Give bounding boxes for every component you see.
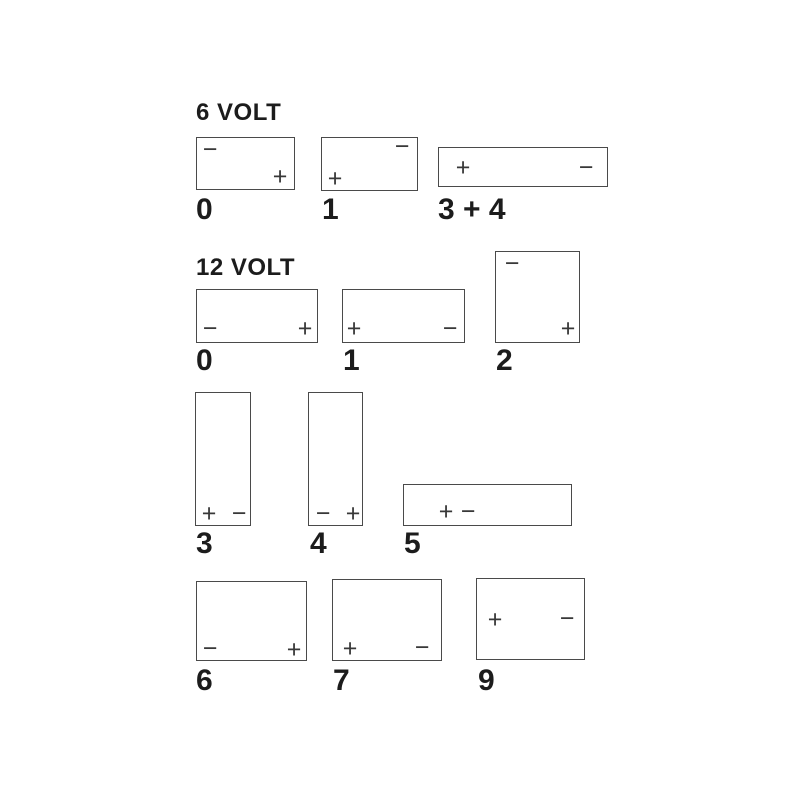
minus-terminal-icon: −: [505, 252, 520, 277]
battery-box-6-volt-0: −+: [196, 137, 295, 190]
battery-label-12-volt-3: 3: [196, 529, 213, 559]
battery-box-12-volt-4: −+: [308, 392, 363, 526]
minus-terminal-icon: −: [316, 502, 331, 527]
battery-label-12-volt-7: 7: [333, 666, 350, 696]
minus-terminal-icon: −: [395, 135, 410, 160]
plus-terminal-icon: +: [328, 167, 343, 192]
battery-label-12-volt-6: 6: [196, 666, 213, 696]
minus-terminal-icon: −: [443, 317, 458, 342]
plus-terminal-icon: +: [347, 317, 362, 342]
plus-terminal-icon: +: [287, 638, 302, 663]
battery-label-6-volt-1: 1: [322, 195, 339, 225]
battery-label-12-volt-9: 9: [478, 666, 495, 696]
minus-terminal-icon: −: [203, 317, 218, 342]
minus-terminal-icon: −: [579, 156, 594, 181]
minus-terminal-icon: −: [203, 138, 218, 163]
section-title-6-volt: 6 VOLT: [196, 101, 281, 125]
battery-label-12-volt-2: 2: [496, 346, 513, 376]
battery-label-12-volt-4: 4: [310, 529, 327, 559]
plus-terminal-icon: +: [456, 156, 471, 181]
battery-box-12-volt-6: −+: [196, 581, 307, 661]
battery-label-12-volt-5: 5: [404, 529, 421, 559]
battery-label-6-volt-0: 0: [196, 195, 213, 225]
plus-terminal-icon: +: [561, 317, 576, 342]
battery-label-12-volt-1: 1: [343, 346, 360, 376]
battery-box-12-volt-5: +−: [403, 484, 572, 526]
minus-terminal-icon: −: [461, 500, 476, 525]
battery-label-12-volt-0: 0: [196, 346, 213, 376]
battery-box-12-volt-7: +−: [332, 579, 442, 661]
battery-box-6-volt-1: −+: [321, 137, 418, 191]
plus-terminal-icon: +: [343, 637, 358, 662]
plus-terminal-icon: +: [202, 502, 217, 527]
battery-box-12-volt-0: −+: [196, 289, 318, 343]
plus-terminal-icon: +: [439, 500, 454, 525]
battery-box-12-volt-1: +−: [342, 289, 465, 343]
battery-terminal-layout-diagram: 6 VOLT−+0−+1+−3 + 412 VOLT−+0+−1−+2+−3−+…: [0, 0, 800, 800]
battery-box-12-volt-9: +−: [476, 578, 585, 660]
plus-terminal-icon: +: [346, 502, 361, 527]
minus-terminal-icon: −: [560, 607, 575, 632]
minus-terminal-icon: −: [203, 637, 218, 662]
battery-box-12-volt-2: −+: [495, 251, 580, 343]
plus-terminal-icon: +: [273, 165, 288, 190]
battery-box-12-volt-3: +−: [195, 392, 251, 526]
section-title-12-volt: 12 VOLT: [196, 256, 295, 280]
plus-terminal-icon: +: [488, 608, 503, 633]
battery-box-6-volt-3+4: +−: [438, 147, 608, 187]
plus-terminal-icon: +: [298, 317, 313, 342]
battery-label-6-volt-3+4: 3 + 4: [438, 195, 506, 225]
minus-terminal-icon: −: [415, 636, 430, 661]
minus-terminal-icon: −: [232, 502, 247, 527]
